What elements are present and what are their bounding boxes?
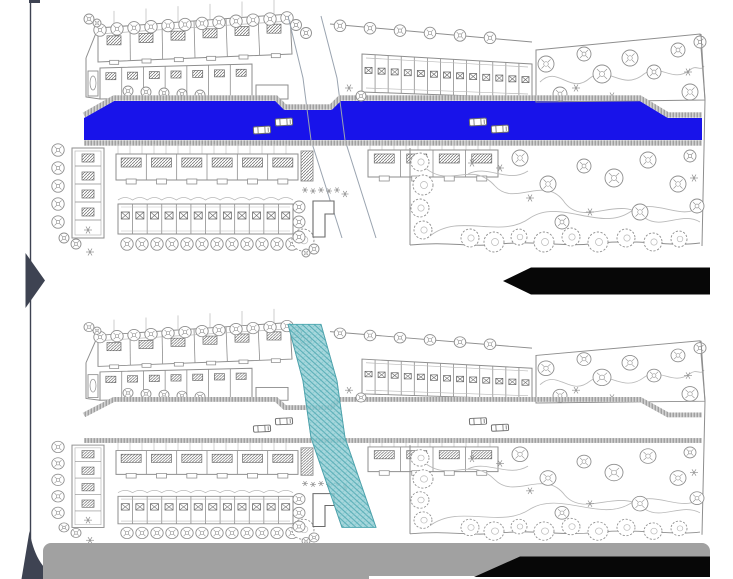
tree-icon	[121, 238, 133, 250]
tree-icon	[647, 65, 661, 79]
tree-icon	[670, 176, 686, 192]
tree-icon	[293, 216, 305, 228]
tree-icon	[512, 447, 528, 462]
tree-icon	[640, 152, 656, 168]
shrub-icon	[310, 188, 316, 193]
car-icon	[253, 425, 270, 432]
car-icon	[275, 418, 292, 425]
car-icon	[491, 125, 508, 133]
shrub-icon	[342, 191, 349, 197]
tree-icon	[52, 507, 64, 518]
tree-icon	[52, 474, 64, 485]
tree-icon	[230, 15, 242, 27]
bush-icon	[411, 199, 429, 217]
tree-icon	[84, 322, 94, 331]
tree-icon	[593, 369, 611, 385]
shrub-icon	[345, 387, 353, 393]
tree-icon	[111, 23, 123, 35]
tree-icon	[271, 238, 283, 250]
shrub-icon	[526, 488, 534, 494]
tree-icon	[93, 327, 101, 334]
tree-icon	[196, 17, 208, 29]
tree-icon	[145, 328, 157, 339]
shrub-icon	[318, 187, 324, 192]
tree-icon	[181, 527, 193, 538]
tree-icon	[356, 393, 366, 402]
tree-icon	[271, 527, 283, 538]
tree-icon	[128, 329, 140, 340]
shrub-icon	[86, 537, 94, 543]
tree-icon	[52, 491, 64, 502]
tree-icon	[52, 162, 64, 174]
shrub-icon	[302, 481, 308, 486]
tree-icon	[162, 19, 174, 31]
tree-icon	[230, 323, 242, 334]
bush-icon	[534, 232, 554, 252]
tree-icon	[52, 180, 64, 192]
tree-icon	[52, 144, 64, 156]
tree-icon	[213, 324, 225, 335]
tree-icon	[211, 527, 223, 538]
tree-icon	[247, 14, 259, 26]
tree-icon	[605, 169, 623, 187]
tree-icon	[291, 20, 302, 31]
tree-icon	[166, 238, 178, 250]
tree-icon	[682, 84, 698, 100]
tree-icon	[364, 22, 376, 34]
tree-icon	[151, 527, 163, 538]
tree-icon	[605, 464, 623, 480]
footer-bar-left-extension	[43, 561, 369, 579]
shrub-icon	[334, 187, 340, 192]
tree-icon	[302, 249, 310, 257]
tree-icon	[111, 330, 123, 341]
tree-icon	[622, 355, 638, 370]
bush-icon	[484, 232, 504, 252]
tree-icon	[59, 233, 69, 243]
bush-icon	[588, 522, 608, 540]
tree-icon	[264, 321, 276, 332]
site-plan-bottom	[52, 309, 706, 545]
tree-icon	[690, 492, 704, 505]
tree-icon	[123, 388, 133, 397]
tree-icon	[59, 523, 69, 532]
tree-icon	[555, 506, 569, 519]
tree-icon	[647, 369, 661, 382]
tree-icon	[538, 56, 554, 72]
tree-icon	[52, 216, 64, 228]
shrub-icon	[572, 85, 580, 92]
tree-icon	[622, 50, 638, 66]
car-icon	[469, 118, 486, 126]
tree-icon	[540, 176, 556, 192]
tree-icon	[394, 332, 406, 343]
tree-icon	[670, 471, 686, 486]
tree-icon	[121, 527, 133, 538]
tree-icon	[123, 86, 133, 96]
tree-icon	[71, 239, 81, 249]
bush-icon	[511, 519, 527, 534]
tree-icon	[241, 238, 253, 250]
tree-icon	[671, 43, 685, 57]
bush-icon	[413, 175, 433, 195]
tree-icon	[264, 13, 276, 25]
tree-icon	[356, 91, 366, 101]
tree-icon	[293, 521, 305, 532]
tree-icon	[334, 328, 346, 339]
tree-icon	[145, 21, 157, 33]
bush-icon	[511, 229, 527, 245]
tree-icon	[226, 238, 238, 250]
tree-icon	[247, 322, 259, 333]
tree-icon	[93, 19, 101, 27]
tree-icon	[632, 496, 648, 511]
tree-icon	[293, 201, 305, 213]
tree-icon	[577, 159, 591, 173]
bush-icon	[588, 232, 608, 252]
tree-icon	[555, 215, 569, 229]
car-icon	[253, 126, 270, 134]
shrub-icon	[345, 85, 353, 92]
bush-icon	[414, 221, 432, 239]
car-icon	[491, 424, 508, 431]
tree-icon	[196, 527, 208, 538]
shrub-icon	[586, 500, 594, 506]
tree-icon	[52, 458, 64, 469]
tree-icon	[538, 361, 554, 376]
tree-icon	[334, 20, 346, 32]
tree-icon	[181, 238, 193, 250]
bush-icon	[644, 233, 662, 251]
tree-icon	[136, 238, 148, 250]
bush-icon	[617, 229, 635, 247]
tree-icon	[128, 22, 140, 34]
shrub-icon	[302, 187, 308, 192]
tree-icon	[196, 325, 208, 336]
bush-icon	[411, 450, 429, 466]
tree-icon	[84, 14, 94, 24]
tree-icon	[684, 150, 696, 162]
tree-icon	[694, 36, 706, 48]
shrub-icon	[526, 195, 534, 202]
tree-icon	[293, 507, 305, 518]
tree-icon	[424, 335, 436, 346]
site-plan-top	[52, 0, 706, 257]
tree-icon	[632, 204, 648, 220]
car-icon	[469, 418, 486, 425]
tree-icon	[424, 27, 436, 39]
tree-icon	[694, 343, 706, 354]
redacted-label-arrow-top-plan	[503, 268, 710, 295]
tree-icon	[454, 30, 466, 42]
road-highlight-band	[84, 101, 702, 140]
tree-icon	[179, 326, 191, 337]
tree-icon	[309, 244, 319, 254]
bush-icon	[484, 522, 504, 540]
tree-icon	[151, 238, 163, 250]
guide-line-tick	[29, 0, 40, 3]
tree-icon	[484, 32, 496, 44]
bush-icon	[562, 228, 580, 246]
site-plan-drawing	[0, 0, 733, 579]
tree-icon	[540, 471, 556, 486]
tree-icon	[71, 528, 81, 537]
bush-icon	[534, 522, 554, 540]
bush-icon	[671, 231, 687, 247]
shrub-icon	[572, 387, 580, 393]
bush-icon	[414, 512, 432, 528]
tree-icon	[196, 238, 208, 250]
tree-icon	[211, 238, 223, 250]
bush-icon	[671, 521, 687, 536]
tree-icon	[136, 527, 148, 538]
tree-icon	[690, 199, 704, 213]
shrub-icon	[318, 481, 324, 486]
shrub-icon	[690, 175, 698, 182]
tree-icon	[512, 150, 528, 166]
tree-icon	[484, 339, 496, 350]
bush-icon	[461, 229, 479, 247]
shrub-icon	[86, 249, 94, 256]
tree-icon	[682, 387, 698, 402]
tree-icon	[256, 238, 268, 250]
tree-icon	[577, 47, 591, 61]
slide	[0, 0, 733, 579]
bush-icon	[413, 470, 433, 488]
tree-icon	[394, 25, 406, 37]
tree-icon	[162, 327, 174, 338]
tree-icon	[671, 349, 685, 362]
bush-icon	[644, 523, 662, 539]
right-chevron-icon	[26, 253, 46, 308]
tree-icon	[640, 449, 656, 464]
tree-icon	[166, 527, 178, 538]
tree-icon	[309, 533, 319, 542]
tree-icon	[52, 441, 64, 452]
tree-icon	[179, 18, 191, 30]
tree-icon	[577, 455, 591, 468]
bush-icon	[411, 492, 429, 508]
tree-icon	[52, 198, 64, 210]
tree-icon	[454, 337, 466, 348]
shrub-icon	[586, 209, 594, 216]
tree-icon	[293, 494, 305, 505]
bush-icon	[411, 153, 429, 171]
tree-icon	[301, 28, 312, 39]
tree-icon	[226, 527, 238, 538]
bush-icon	[461, 519, 479, 535]
tree-icon	[241, 527, 253, 538]
tree-icon	[364, 330, 376, 341]
bush-icon	[562, 518, 580, 534]
shrub-icon	[310, 482, 316, 487]
shrub-icon	[690, 469, 698, 475]
tree-icon	[256, 527, 268, 538]
tree-icon	[593, 65, 611, 83]
tree-icon	[293, 231, 305, 243]
tree-icon	[213, 16, 225, 28]
bush-icon	[617, 519, 635, 535]
tree-icon	[577, 353, 591, 366]
tree-icon	[684, 447, 696, 458]
car-icon	[275, 118, 292, 126]
